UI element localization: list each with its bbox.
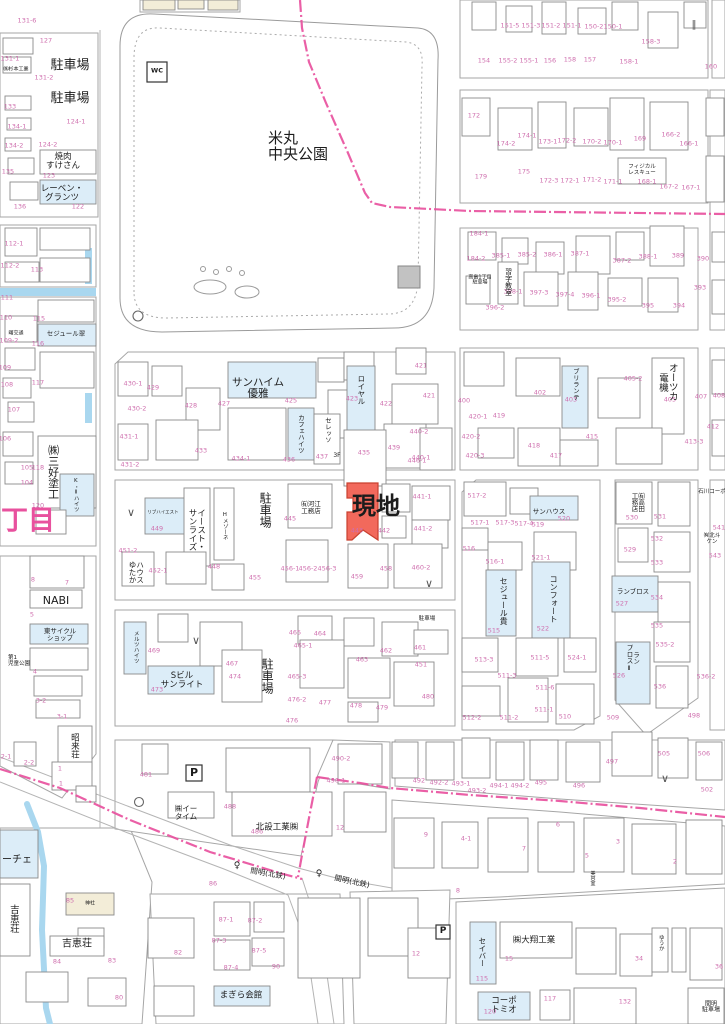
map-base-layer [0, 0, 725, 1024]
map-canvas: 131-6127131-1131-2133134-1134-2124-1124-… [0, 0, 725, 1024]
